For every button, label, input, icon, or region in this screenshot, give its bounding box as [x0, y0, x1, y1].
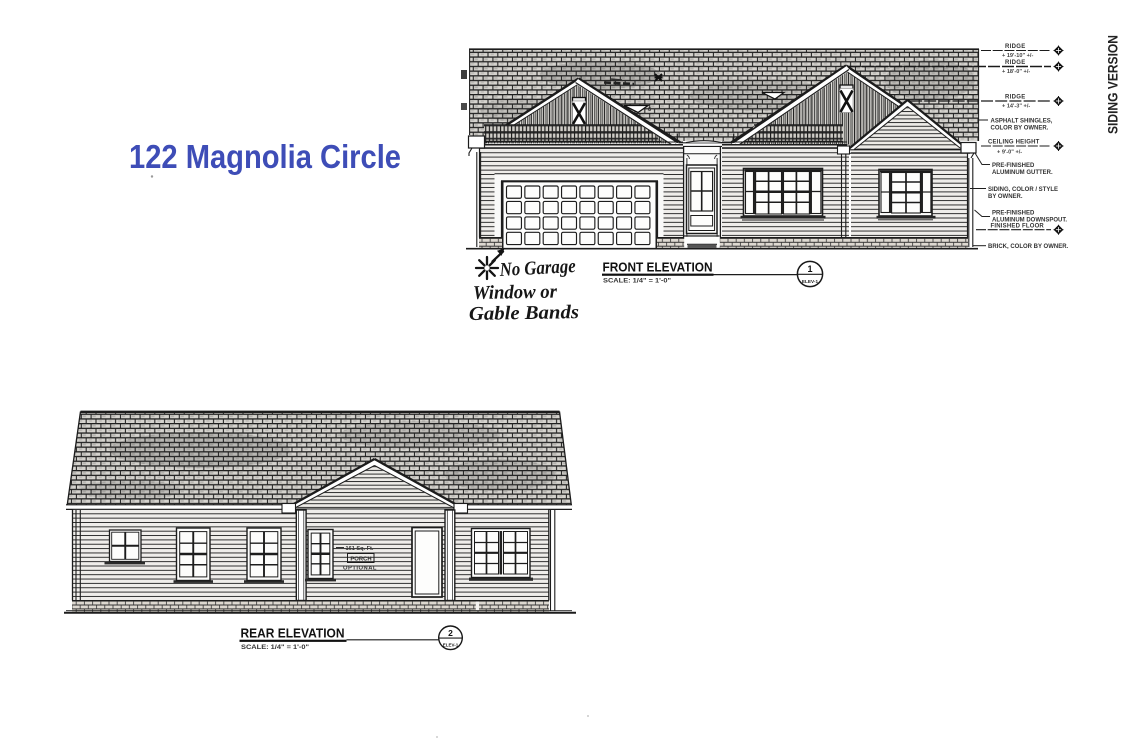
svg-text:RIDGE: RIDGE — [1005, 95, 1026, 101]
svg-text:+ 9'-0" +/-: + 9'-0" +/- — [997, 150, 1022, 156]
svg-text:RIDGE: RIDGE — [1005, 44, 1026, 50]
svg-text:OPTIONAL: OPTIONAL — [343, 565, 377, 571]
svg-text:+ 14'-3" +/-: + 14'-3" +/- — [1002, 104, 1030, 110]
svg-text:161 Sq. Ft.: 161 Sq. Ft. — [346, 546, 374, 552]
svg-text:ASPHALT SHINGLES,: ASPHALT SHINGLES, — [991, 118, 1053, 124]
svg-text:SCALE: 1/4" = 1'-0": SCALE: 1/4" = 1'-0" — [241, 644, 309, 651]
svg-text:BY OWNER.: BY OWNER. — [988, 194, 1023, 200]
svg-text:Gable Bands: Gable Bands — [469, 302, 579, 325]
svg-text:Window or: Window or — [473, 282, 558, 304]
svg-text:COLOR BY OWNER.: COLOR BY OWNER. — [991, 125, 1049, 131]
svg-text:ELEV-1: ELEV-1 — [443, 642, 459, 647]
svg-text:ALUMINUM GUTTER.: ALUMINUM GUTTER. — [992, 170, 1053, 176]
svg-text:No Garage: No Garage — [498, 256, 576, 281]
svg-text:REAR ELEVATION: REAR ELEVATION — [241, 626, 345, 641]
svg-text:ALUMINUM DOWNSPOUT.: ALUMINUM DOWNSPOUT. — [992, 218, 1067, 224]
svg-text:RIDGE: RIDGE — [1005, 60, 1026, 66]
svg-text:+ 18'-0" +/-: + 18'-0" +/- — [1002, 69, 1030, 75]
svg-text:2: 2 — [448, 628, 453, 638]
svg-text:SCALE: 1/4" = 1'-0": SCALE: 1/4" = 1'-0" — [603, 277, 671, 284]
svg-text:ELEV-1: ELEV-1 — [802, 279, 819, 284]
svg-text:PORCH: PORCH — [350, 557, 371, 563]
svg-text:FINISHED FLOOR: FINISHED FLOOR — [991, 224, 1045, 230]
svg-text:SIDING VERSION: SIDING VERSION — [1106, 35, 1121, 134]
svg-text:PRE-FINISHED: PRE-FINISHED — [992, 163, 1035, 169]
svg-text:SIDING, COLOR / STYLE: SIDING, COLOR / STYLE — [988, 187, 1058, 193]
svg-text:122 Magnolia Circle: 122 Magnolia Circle — [129, 139, 401, 176]
svg-text:FRONT ELEVATION: FRONT ELEVATION — [603, 260, 713, 275]
svg-text:6: 6 — [648, 107, 651, 113]
svg-text:BRICK, COLOR BY OWNER.: BRICK, COLOR BY OWNER. — [988, 244, 1069, 250]
svg-text:PRE-FINISHED: PRE-FINISHED — [992, 211, 1035, 217]
svg-text:+ 19'-10" +/-: + 19'-10" +/- — [1002, 53, 1033, 59]
svg-text:1: 1 — [807, 264, 812, 274]
svg-text:CEILING HEIGHT: CEILING HEIGHT — [988, 140, 1040, 146]
